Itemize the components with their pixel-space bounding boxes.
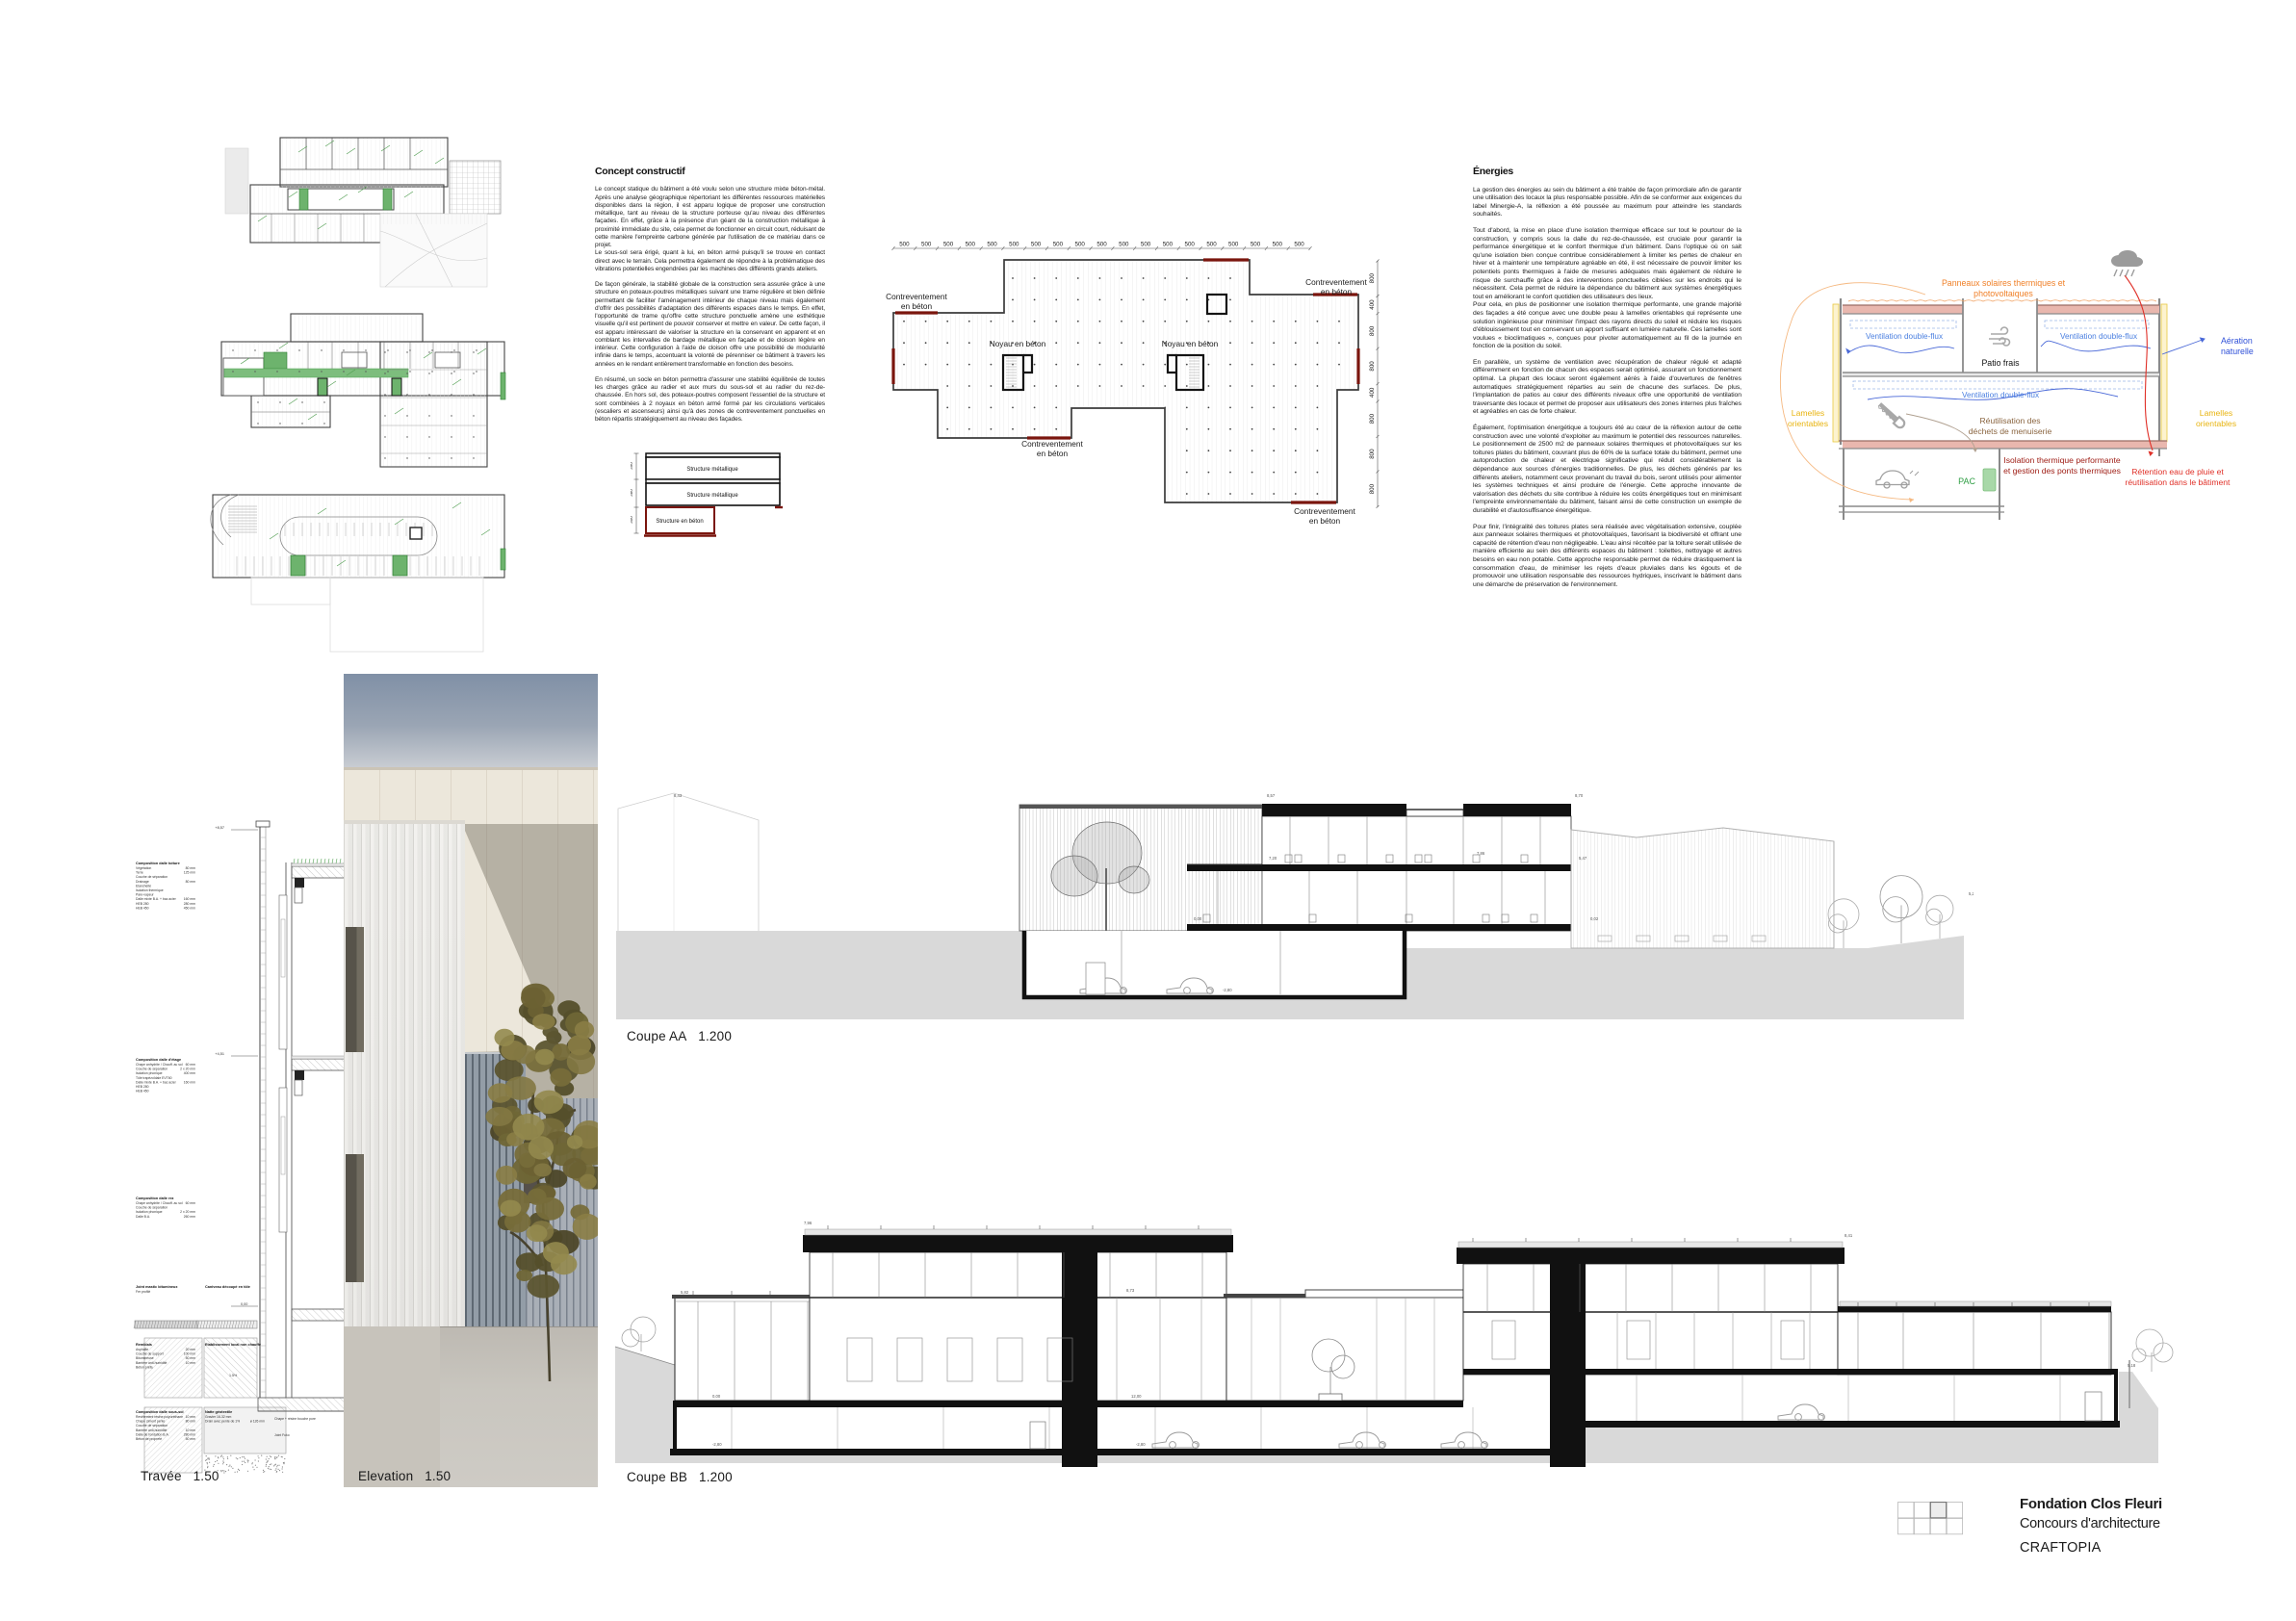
svg-text:Caniveau découpé en tôle: Caniveau découpé en tôle: [205, 1285, 250, 1289]
svg-text:800: 800: [1369, 483, 1376, 494]
svg-text:0,00: 0,00: [241, 1302, 247, 1306]
svg-text:7,96: 7,96: [804, 1221, 813, 1225]
svg-text:500: 500: [1185, 242, 1196, 248]
svg-text:Pare-vapeur: Pare-vapeur: [136, 893, 155, 897]
svg-text:Composition dalle toiture: Composition dalle toiture: [136, 862, 180, 865]
svg-text:Noyau en béton: Noyau en béton: [990, 339, 1046, 348]
svg-text:500: 500: [987, 242, 997, 248]
svg-text:HEB 450: HEB 450: [136, 906, 149, 910]
svg-text:2 x 20 mm: 2 x 20 mm: [180, 1068, 195, 1071]
svg-text:800: 800: [1369, 272, 1376, 283]
svg-text:Gravier 16-32 mm: Gravier 16-32 mm: [205, 1415, 231, 1419]
svg-text:Structure métallique: Structure métallique: [686, 467, 738, 473]
svg-text:Ventilation double-flux: Ventilation double-flux: [1866, 332, 1943, 341]
svg-text:Composition dalle sous-sol: Composition dalle sous-sol: [136, 1410, 184, 1414]
svg-text:Asphalte: Asphalte: [136, 1348, 148, 1351]
svg-text:60 mm: 60 mm: [186, 1201, 196, 1205]
svg-text:800: 800: [1369, 325, 1376, 336]
svg-text:280 mm: 280 mm: [184, 902, 195, 906]
svg-text:400: 400: [1369, 299, 1376, 310]
svg-text:Terre: Terre: [136, 871, 143, 875]
svg-text:7,86: 7,86: [1477, 851, 1485, 856]
svg-text:500: 500: [1273, 242, 1283, 248]
svg-text:Dalle mixte B.A. + bac acier: Dalle mixte B.A. + bac acier: [136, 897, 177, 901]
svg-text:Aération: Aération: [2221, 336, 2253, 346]
svg-text:800: 800: [1369, 449, 1376, 459]
svg-text:Barrière anti-humidité: Barrière anti-humidité: [136, 1361, 168, 1365]
svg-text:280 mm: 280 mm: [184, 1432, 195, 1436]
svg-text:Structure métallique: Structure métallique: [686, 493, 738, 499]
svg-text:Dalle B.A.: Dalle B.A.: [136, 1215, 150, 1219]
svg-text:5,82: 5,82: [681, 1290, 689, 1295]
svg-text:50 mm: 50 mm: [186, 1437, 196, 1441]
svg-text:Bitumineuse: Bitumineuse: [136, 1356, 154, 1360]
svg-text:60 mm: 60 mm: [186, 1063, 196, 1067]
svg-text:Chape + résine bouche pore: Chape + résine bouche pore: [274, 1417, 316, 1421]
svg-text:500: 500: [943, 242, 954, 248]
svg-text:500: 500: [1075, 242, 1086, 248]
svg-text:100 mm: 100 mm: [184, 1352, 195, 1356]
svg-text:80 mm: 80 mm: [186, 880, 196, 884]
svg-text:Dalle mixte B.A. + bac acier: Dalle mixte B.A. + bac acier: [136, 1080, 177, 1084]
svg-text:orientables: orientables: [1788, 419, 1828, 428]
svg-text:PAC: PAC: [1958, 476, 1975, 486]
svg-text:500: 500: [1096, 242, 1107, 248]
svg-text:Chape anhydrite / Chauff. au s: Chape anhydrite / Chauff. au sol: [136, 1063, 183, 1067]
svg-text:Couche de support: Couche de support: [136, 1352, 164, 1356]
svg-text:Fer profilé: Fer profilé: [136, 1290, 150, 1294]
svg-text:Revêtement résine polyuréthane: Revêtement résine polyuréthane: [136, 1415, 183, 1419]
svg-text:400 mm: 400 mm: [184, 1071, 195, 1075]
svg-text:HEB 450: HEB 450: [136, 1090, 149, 1094]
svg-text:450 mm: 450 mm: [184, 906, 195, 910]
svg-text:Couche de séparation: Couche de séparation: [136, 1068, 168, 1071]
svg-text:500: 500: [1251, 242, 1261, 248]
svg-text:Drain avec pente de 1%: Drain avec pente de 1%: [205, 1420, 240, 1424]
svg-text:Noyau en béton: Noyau en béton: [1162, 339, 1219, 348]
svg-text:Couche de séparation: Couche de séparation: [136, 1206, 168, 1210]
svg-text:12,00: 12,00: [1131, 1394, 1142, 1399]
svg-text:20 mm: 20 mm: [186, 1348, 196, 1351]
svg-text:5,21: 5,21: [1969, 891, 1974, 896]
svg-text:8,41: 8,41: [1845, 1233, 1853, 1238]
svg-text:300: 300: [631, 516, 633, 524]
svg-text:80 mm: 80 mm: [186, 1420, 196, 1424]
svg-text:en béton: en béton: [1321, 287, 1353, 296]
svg-text:photovoltaiques: photovoltaiques: [1974, 289, 2033, 298]
svg-text:Béton de propreté: Béton de propreté: [136, 1437, 162, 1441]
svg-text:Patio frais: Patio frais: [1981, 358, 2020, 368]
svg-text:160 mm: 160 mm: [184, 897, 195, 901]
svg-text:Isolation phonique: Isolation phonique: [136, 1071, 163, 1075]
svg-text:500: 500: [1141, 242, 1151, 248]
svg-text:Composition dalle d'étage: Composition dalle d'étage: [136, 1058, 181, 1062]
svg-text:500: 500: [1228, 242, 1239, 248]
svg-text:ø 126 mm: ø 126 mm: [250, 1420, 265, 1424]
svg-text:125 mm: 125 mm: [184, 871, 195, 875]
svg-text:8,73: 8,73: [1126, 1288, 1135, 1293]
svg-text:Remblais: Remblais: [136, 1343, 152, 1347]
svg-text:+4,51: +4,51: [215, 1052, 224, 1056]
svg-text:Barrière anti-humidité: Barrière anti-humidité: [136, 1428, 168, 1432]
svg-text:500: 500: [966, 242, 976, 248]
svg-text:800: 800: [1369, 413, 1376, 424]
svg-text:500: 500: [1206, 242, 1217, 248]
svg-text:-2,80: -2,80: [1136, 1442, 1146, 1447]
svg-text:10 mm: 10 mm: [186, 1428, 196, 1432]
svg-text:Isolation phonique: Isolation phonique: [136, 1210, 163, 1214]
svg-text:Structure en béton: Structure en béton: [656, 519, 703, 525]
svg-text:Couche de séparation: Couche de séparation: [136, 875, 168, 879]
svg-text:500: 500: [1031, 242, 1042, 248]
svg-text:Drainage: Drainage: [136, 880, 149, 884]
svg-text:Etanchéité: Etanchéité: [136, 884, 151, 888]
svg-text:déchets de menuiserie: déchets de menuiserie: [1969, 426, 2052, 436]
svg-text:50 mm: 50 mm: [186, 1356, 196, 1360]
svg-text:Contreventement: Contreventement: [1305, 277, 1367, 287]
svg-text:Ventilation double-flux: Ventilation double-flux: [1962, 391, 2039, 399]
svg-text:naturelle: naturelle: [2221, 347, 2254, 356]
svg-text:8,70: 8,70: [1575, 793, 1584, 798]
svg-text:en béton: en béton: [901, 301, 933, 311]
svg-text:Isolation thermique performant: Isolation thermique performante: [2003, 455, 2121, 465]
svg-text:HEB 280: HEB 280: [136, 902, 149, 906]
svg-text:Ventilation double-flux: Ventilation double-flux: [2060, 332, 2137, 341]
svg-text:260 mm: 260 mm: [184, 1215, 195, 1219]
svg-text:380: 380: [631, 489, 633, 497]
svg-text:400: 400: [1369, 387, 1376, 398]
svg-text:500: 500: [1009, 242, 1019, 248]
svg-text:Contreventement: Contreventement: [886, 292, 947, 301]
svg-text:10 mm: 10 mm: [186, 1361, 196, 1365]
svg-text:10 mm: 10 mm: [186, 1415, 196, 1419]
svg-text:Natte géotextile: Natte géotextile: [205, 1410, 232, 1414]
svg-text:-2,80: -2,80: [1223, 988, 1232, 992]
svg-text:Contreventement: Contreventement: [1021, 439, 1083, 449]
svg-text:Couche de séparation: Couche de séparation: [136, 1424, 168, 1428]
svg-text:8,57: 8,57: [1267, 793, 1276, 798]
svg-text:Chape anhydrite / Chauff. au s: Chape anhydrite / Chauff. au sol: [136, 1201, 183, 1205]
svg-text:800: 800: [1369, 361, 1376, 372]
svg-text:Panneaux solaires thermiques e: Panneaux solaires thermiques et: [1942, 278, 2066, 288]
svg-text:8,43: 8,43: [674, 793, 683, 798]
svg-text:500: 500: [899, 242, 910, 248]
svg-text:Joint Fuko: Joint Fuko: [274, 1433, 290, 1437]
svg-text:0,00: 0,00: [712, 1394, 721, 1399]
svg-text:500: 500: [1119, 242, 1129, 248]
svg-text:500: 500: [921, 242, 932, 248]
svg-text:Composition dalle rez: Composition dalle rez: [136, 1196, 174, 1200]
svg-text:5,47: 5,47: [1579, 856, 1587, 861]
svg-text:2 x 20 mm: 2 x 20 mm: [180, 1210, 195, 1214]
svg-text:7,20: 7,20: [1269, 856, 1277, 861]
svg-text:HEB 280: HEB 280: [136, 1085, 149, 1089]
svg-text:80 mm: 80 mm: [186, 866, 196, 870]
svg-text:Joint mastic bitumineux: Joint mastic bitumineux: [136, 1285, 178, 1289]
svg-text:-2,80: -2,80: [712, 1442, 722, 1447]
svg-text:Béton préfa: Béton préfa: [136, 1365, 153, 1369]
svg-text:en béton: en béton: [1037, 449, 1069, 458]
svg-text:160 mm: 160 mm: [184, 1080, 195, 1084]
svg-text:0,02: 0,02: [1590, 916, 1599, 921]
svg-text:Isolation thermique: Isolation thermique: [136, 888, 164, 892]
svg-text:5,18: 5,18: [2128, 1363, 2136, 1368]
svg-text:0,00: 0,00: [1194, 916, 1202, 921]
svg-text:et gestion des ponts thermique: et gestion des ponts thermiques: [2003, 466, 2121, 476]
svg-text:500: 500: [1053, 242, 1064, 248]
svg-text:Végétation: Végétation: [136, 866, 151, 870]
svg-text:en béton: en béton: [1309, 516, 1341, 526]
svg-text:réutilisation dans le bâtiment: réutilisation dans le bâtiment: [2126, 477, 2232, 487]
svg-text:orientables: orientables: [2196, 419, 2236, 428]
svg-text:Réutilisation des: Réutilisation des: [1979, 416, 2040, 425]
svg-text:Chape ciment pente: Chape ciment pente: [136, 1420, 165, 1424]
svg-text:390: 390: [631, 462, 633, 470]
svg-text:Rétention eau de pluie et: Rétention eau de pluie et: [2131, 467, 2224, 476]
svg-text:+8,57: +8,57: [215, 826, 224, 830]
svg-text:Lamelles: Lamelles: [2200, 408, 2232, 418]
svg-text:Etablissement local non chauff: Etablissement local non chauffé: [205, 1343, 261, 1347]
svg-text:Dalle de fondation B.A.: Dalle de fondation B.A.: [136, 1432, 169, 1436]
svg-text:500: 500: [1163, 242, 1174, 248]
svg-text:Lamelles: Lamelles: [1792, 408, 1824, 418]
svg-text:500: 500: [1294, 242, 1304, 248]
svg-text:Tôle trapézoïdale EVT60: Tôle trapézoïdale EVT60: [136, 1076, 172, 1080]
svg-text:Contreventement: Contreventement: [1294, 506, 1355, 516]
